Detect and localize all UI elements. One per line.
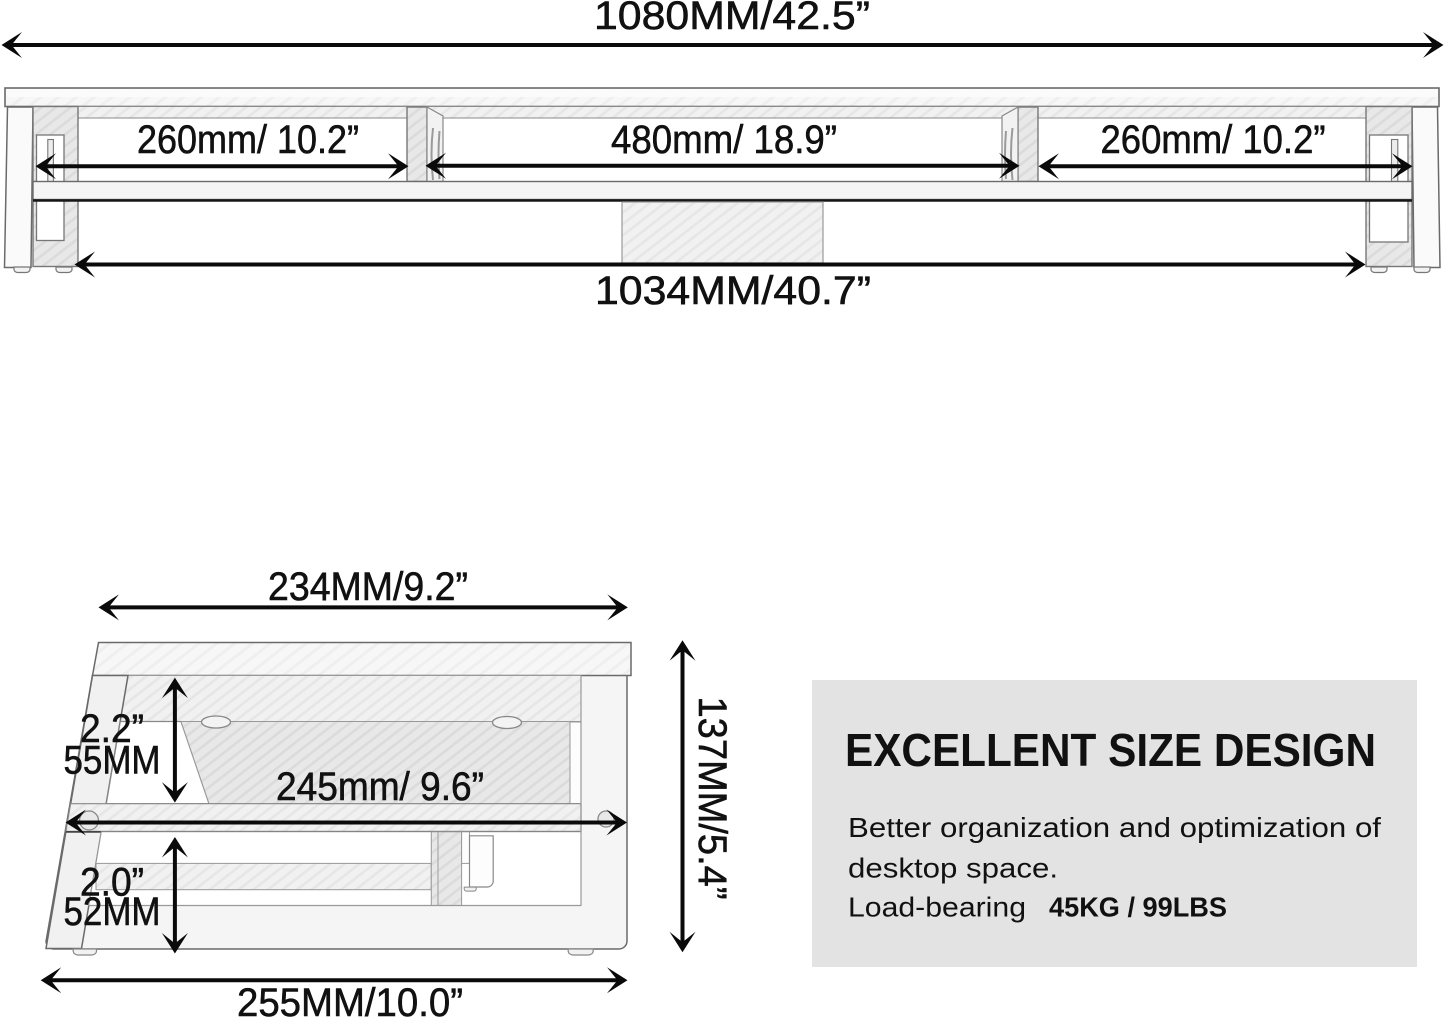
svg-text:1080MM/42.5”: 1080MM/42.5” [594,0,870,38]
svg-text:Better organization and optimi: Better organization and optimization of [848,812,1381,843]
svg-text:55MM: 55MM [64,739,161,783]
svg-text:52MM: 52MM [64,890,161,934]
svg-text:260mm/ 10.2”: 260mm/ 10.2” [1101,118,1326,162]
svg-text:260mm/ 10.2”: 260mm/ 10.2” [137,118,359,162]
svg-text:desktop space.: desktop space. [848,853,1058,884]
svg-text:EXCELLENT SIZE DESIGN: EXCELLENT SIZE DESIGN [845,724,1376,776]
svg-text:234MM/9.2”: 234MM/9.2” [268,565,468,609]
svg-text:137MM/5.4”: 137MM/5.4” [690,697,734,900]
svg-text:255MM/10.0”: 255MM/10.0” [237,981,463,1022]
svg-text:Load-bearing: Load-bearing [848,892,1026,923]
svg-text:480mm/ 18.9”: 480mm/ 18.9” [611,118,837,162]
svg-text:1034MM/40.7”: 1034MM/40.7” [595,269,871,313]
svg-text:245mm/ 9.6”: 245mm/ 9.6” [276,765,484,809]
svg-text:45KG / 99LBS: 45KG / 99LBS [1049,892,1227,923]
